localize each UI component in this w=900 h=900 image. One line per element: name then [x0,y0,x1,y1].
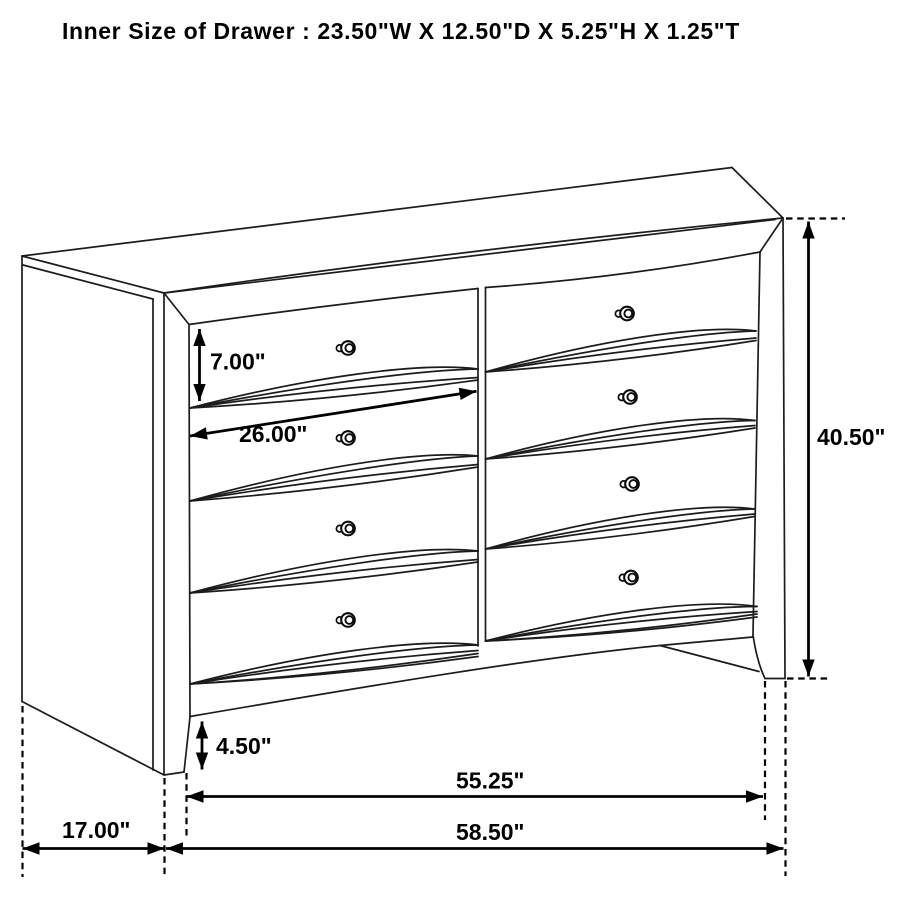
svg-text:55.25": 55.25" [456,768,524,794]
svg-text:26.00": 26.00" [239,421,307,447]
svg-text:17.00": 17.00" [62,817,130,843]
svg-text:40.50": 40.50" [817,424,885,450]
svg-text:58.50": 58.50" [456,819,524,845]
svg-text:7.00": 7.00" [210,349,266,375]
svg-text:Inner Size of Drawer : 23.50"W: Inner Size of Drawer : 23.50"W X 12.50"D… [62,18,740,44]
svg-text:4.50": 4.50" [216,733,272,759]
